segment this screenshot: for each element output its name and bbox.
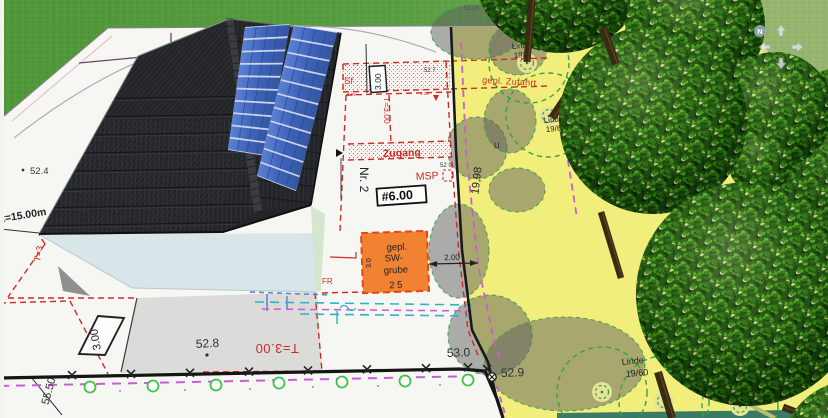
svg-text:Zugang: Zugang [383,147,421,160]
svg-text:gepl.: gepl. [386,241,407,253]
svg-text:3 18: 3 18 [420,91,429,96]
svg-text:52 9: 52 9 [440,163,452,169]
svg-text:2.00: 2.00 [444,253,460,263]
svg-text:5 99: 5 99 [347,92,356,97]
svg-text:T=3.00: T=3.00 [255,341,299,356]
svg-text:SW-: SW- [384,253,403,265]
svg-text:MSP: MSP [416,170,439,183]
svg-text:Nr. 2: Nr. 2 [357,167,371,193]
svg-text:19/60: 19/60 [625,367,648,379]
svg-text:Linde: Linde [621,355,644,367]
svg-text:grube: grube [383,264,408,276]
svg-text:T=3.00: T=3.00 [382,97,392,124]
svg-text:N: N [757,27,762,36]
svg-text:Sf: Sf [344,76,353,87]
svg-text:3.0: 3.0 [366,258,373,268]
svg-text:FR: FR [322,277,333,286]
svg-text:52.8: 52.8 [195,336,219,351]
svg-text:3.00: 3.00 [373,73,383,90]
svg-text:u: u [494,140,500,151]
svg-text:2 5: 2 5 [389,280,403,292]
svg-text:52 7: 52 7 [424,68,436,74]
svg-text:#6.00: #6.00 [381,188,413,204]
svg-text:52.25: 52.25 [464,6,480,12]
svg-text:52.4: 52.4 [30,166,49,177]
svg-text:53.0: 53.0 [447,345,471,360]
svg-text:52.9: 52.9 [501,365,525,380]
